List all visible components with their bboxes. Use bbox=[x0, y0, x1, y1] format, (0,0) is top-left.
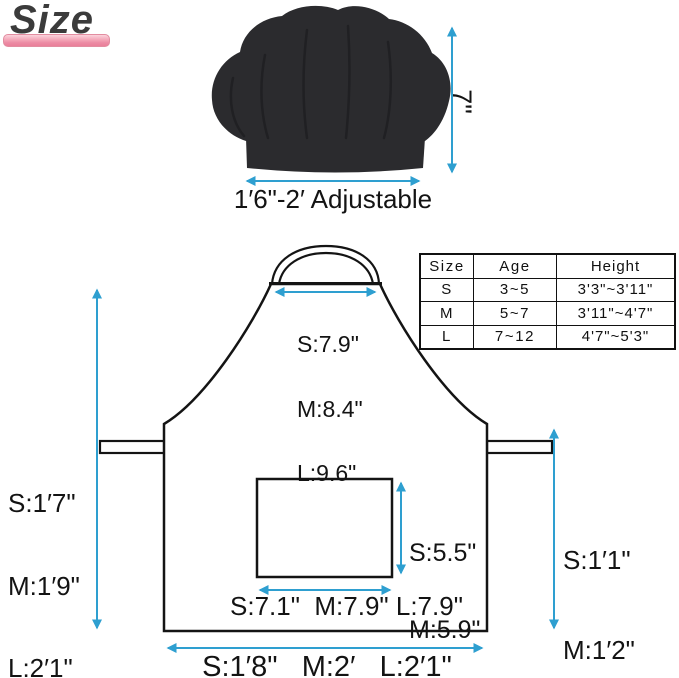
waist-tie-left bbox=[100, 441, 165, 453]
hat-band bbox=[246, 138, 425, 173]
full-length-l: L:2′1" bbox=[8, 655, 80, 678]
table-row: L 7~12 4'7"~5'3" bbox=[420, 325, 675, 349]
table-row: M 5~7 3'11"~4'7" bbox=[420, 302, 675, 326]
neck-width-labels: S:7.9" M:8.4" L:9.6" bbox=[297, 291, 363, 528]
table-cell: M bbox=[420, 302, 474, 326]
pocket-height-labels: S:5.5" M:5.9" L:5.9" bbox=[409, 490, 480, 678]
side-hem-labels: S:1′1" M:1′2" L:1′3" bbox=[563, 485, 635, 678]
table-cell: L bbox=[420, 325, 474, 349]
size-chart-infographic: Size bbox=[0, 0, 679, 678]
size-table: Size Age Height S 3~5 3'3"~3'11" M 5~7 3… bbox=[419, 253, 676, 350]
full-length-m: M:1′9" bbox=[8, 573, 80, 601]
table-cell: S bbox=[420, 278, 474, 302]
neck-width-l: L:9.6" bbox=[297, 463, 363, 485]
full-length-s: S:1′7" bbox=[8, 490, 80, 518]
side-hem-s: S:1′1" bbox=[563, 545, 635, 575]
waist-tie-right bbox=[487, 441, 552, 453]
table-cell: 3'11"~4'7" bbox=[557, 302, 676, 326]
pocket-height-s: S:5.5" bbox=[409, 541, 480, 567]
neck-width-m: M:8.4" bbox=[297, 399, 363, 421]
neck-width-s: S:7.9" bbox=[297, 334, 363, 356]
side-hem-m: M:1′2" bbox=[563, 635, 635, 665]
hat-cloud bbox=[212, 6, 451, 141]
table-cell: 3'3"~3'11" bbox=[557, 278, 676, 302]
neck-strap-inner bbox=[279, 253, 373, 284]
table-cell: 7~12 bbox=[474, 325, 557, 349]
table-header-row: Size Age Height bbox=[420, 254, 675, 278]
hat-width-label: 1′6"-2′ Adjustable bbox=[213, 184, 453, 215]
table-header-age: Age bbox=[474, 254, 557, 278]
table-cell: 3~5 bbox=[474, 278, 557, 302]
pocket-width-label: S:7.1" M:7.9" L:7.9" bbox=[230, 591, 450, 622]
bottom-width-label: S:1′8" M:2′ L:2′1" bbox=[167, 651, 487, 678]
full-length-labels: S:1′7" M:1′9" L:2′1" bbox=[8, 435, 80, 678]
table-cell: 4'7"~5'3" bbox=[557, 325, 676, 349]
table-header-height: Height bbox=[557, 254, 676, 278]
table-header-size: Size bbox=[420, 254, 474, 278]
table-row: S 3~5 3'3"~3'11" bbox=[420, 278, 675, 302]
table-cell: 5~7 bbox=[474, 302, 557, 326]
chef-hat-illustration bbox=[212, 6, 451, 173]
hat-height-label: 7" bbox=[446, 89, 477, 114]
